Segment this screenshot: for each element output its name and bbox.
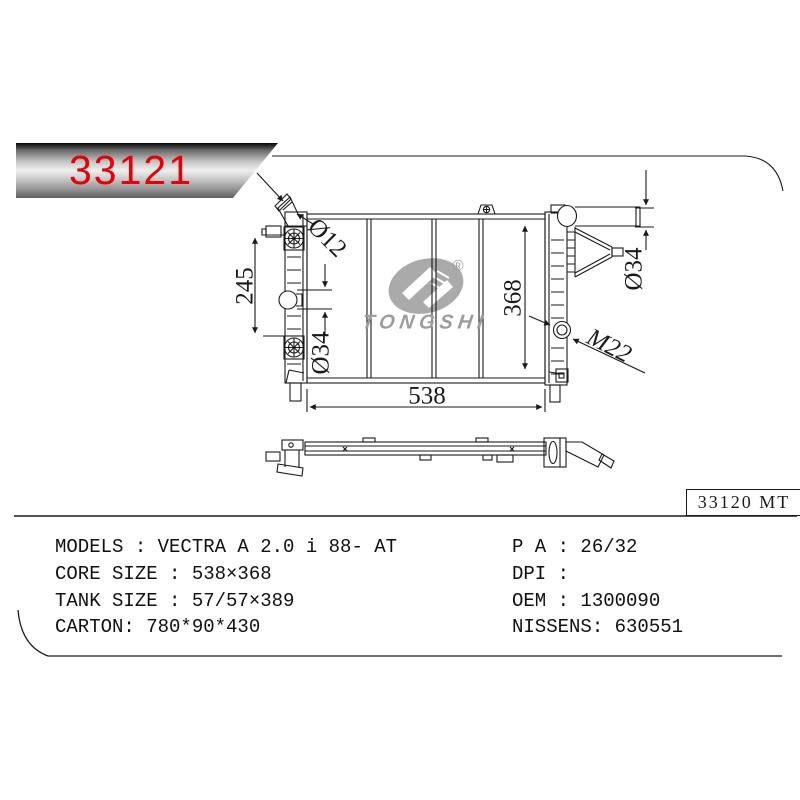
dim-right-pipe-diameter: Ø34 [622,247,647,290]
spec-carton: CARTON: 780*90*430 [55,616,260,638]
part-number: 33121 [69,150,193,191]
dim-left-span: 245 [233,267,258,305]
radiator-top-view [266,438,614,476]
reference-code: 33120 MT [698,492,791,513]
spec-models: MODELS : VECTRA A 2.0 i 88- AT [55,536,397,558]
dim-left-port-diameter: Ø34 [309,331,334,374]
spec-tank-size: TANK SIZE : 57/57×389 [55,590,294,612]
banner-swoosh-line [272,156,783,191]
spec-core-size: CORE SIZE : 538×368 [55,563,272,585]
catalog-page: { "banner": { "part_number": "33121" }, … [0,0,800,800]
reference-code-box: 33120 MT [686,489,800,516]
spec-pa: P A : 26/32 [512,536,637,558]
radiator-technical-drawing [0,0,800,800]
spec-nissens: NISSENS: 630551 [512,616,683,638]
brand-watermark-text: TONGSHI [361,312,490,335]
dim-core-width: 538 [408,384,446,409]
spec-dpi: DPI : [512,563,569,585]
spec-oem: OEM : 1300090 [512,590,660,612]
dim-core-height: 368 [501,279,526,317]
part-number-banner: 33121 [16,143,278,198]
registered-trademark-icon: ® [452,258,463,275]
